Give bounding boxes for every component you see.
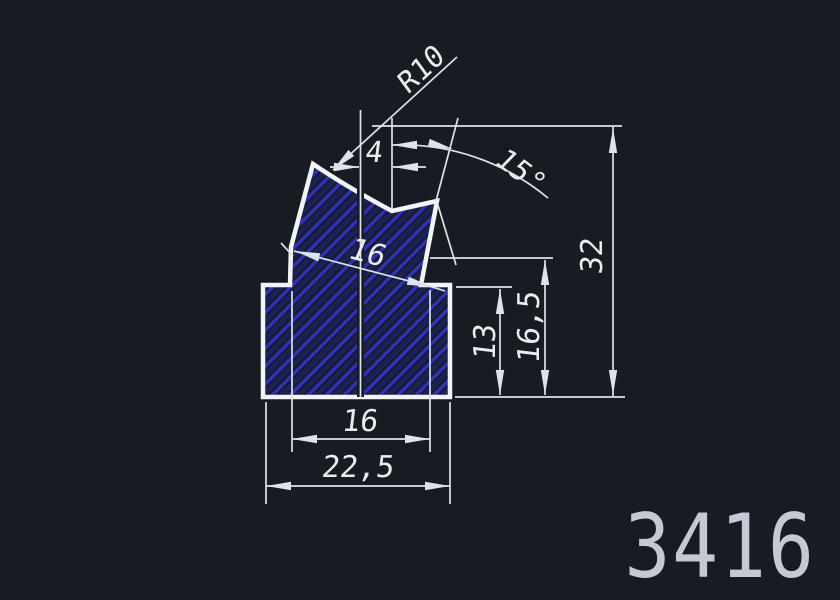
dimension-height-13: 13 [456,287,512,395]
dim-label-radius-r10: R10 [392,37,450,100]
dim-label-height-13: 13 [468,322,503,362]
dimension-arrowhead [425,482,450,490]
dimension-arrowhead [609,128,617,153]
dim-label-height-16-5: 16,5 [512,289,547,366]
dimension-arrowhead [496,289,504,314]
dimension-arrowhead [541,260,549,285]
dimension-arrowhead [292,435,317,443]
dimension-arrowhead [334,163,359,171]
dimension-arrowhead [541,370,549,395]
dimension-arrowhead [405,435,430,443]
dim-label-width-16-bottom: 16 [340,404,380,439]
dim-label-angle-15: 15° [488,143,554,199]
dimension-arrowhead [496,370,504,395]
dimension-arrowhead [393,163,418,171]
dim-label-width-22-5: 22,5 [320,450,397,485]
dim-label-offset-4: 4 [363,135,385,169]
dimension-arrowhead [266,482,291,490]
part-number-label: 3416 [624,496,815,598]
cad-drawing-canvas: R10415°163216,5131622,53416 [0,0,840,600]
dimension-radius-r10: R10 [330,37,457,173]
dimension-arrowhead [392,141,417,149]
dim-label-height-32: 32 [575,236,610,276]
drawing-viewport: R10415°163216,5131622,53416 [0,0,840,600]
dimension-arrowhead [609,370,617,395]
